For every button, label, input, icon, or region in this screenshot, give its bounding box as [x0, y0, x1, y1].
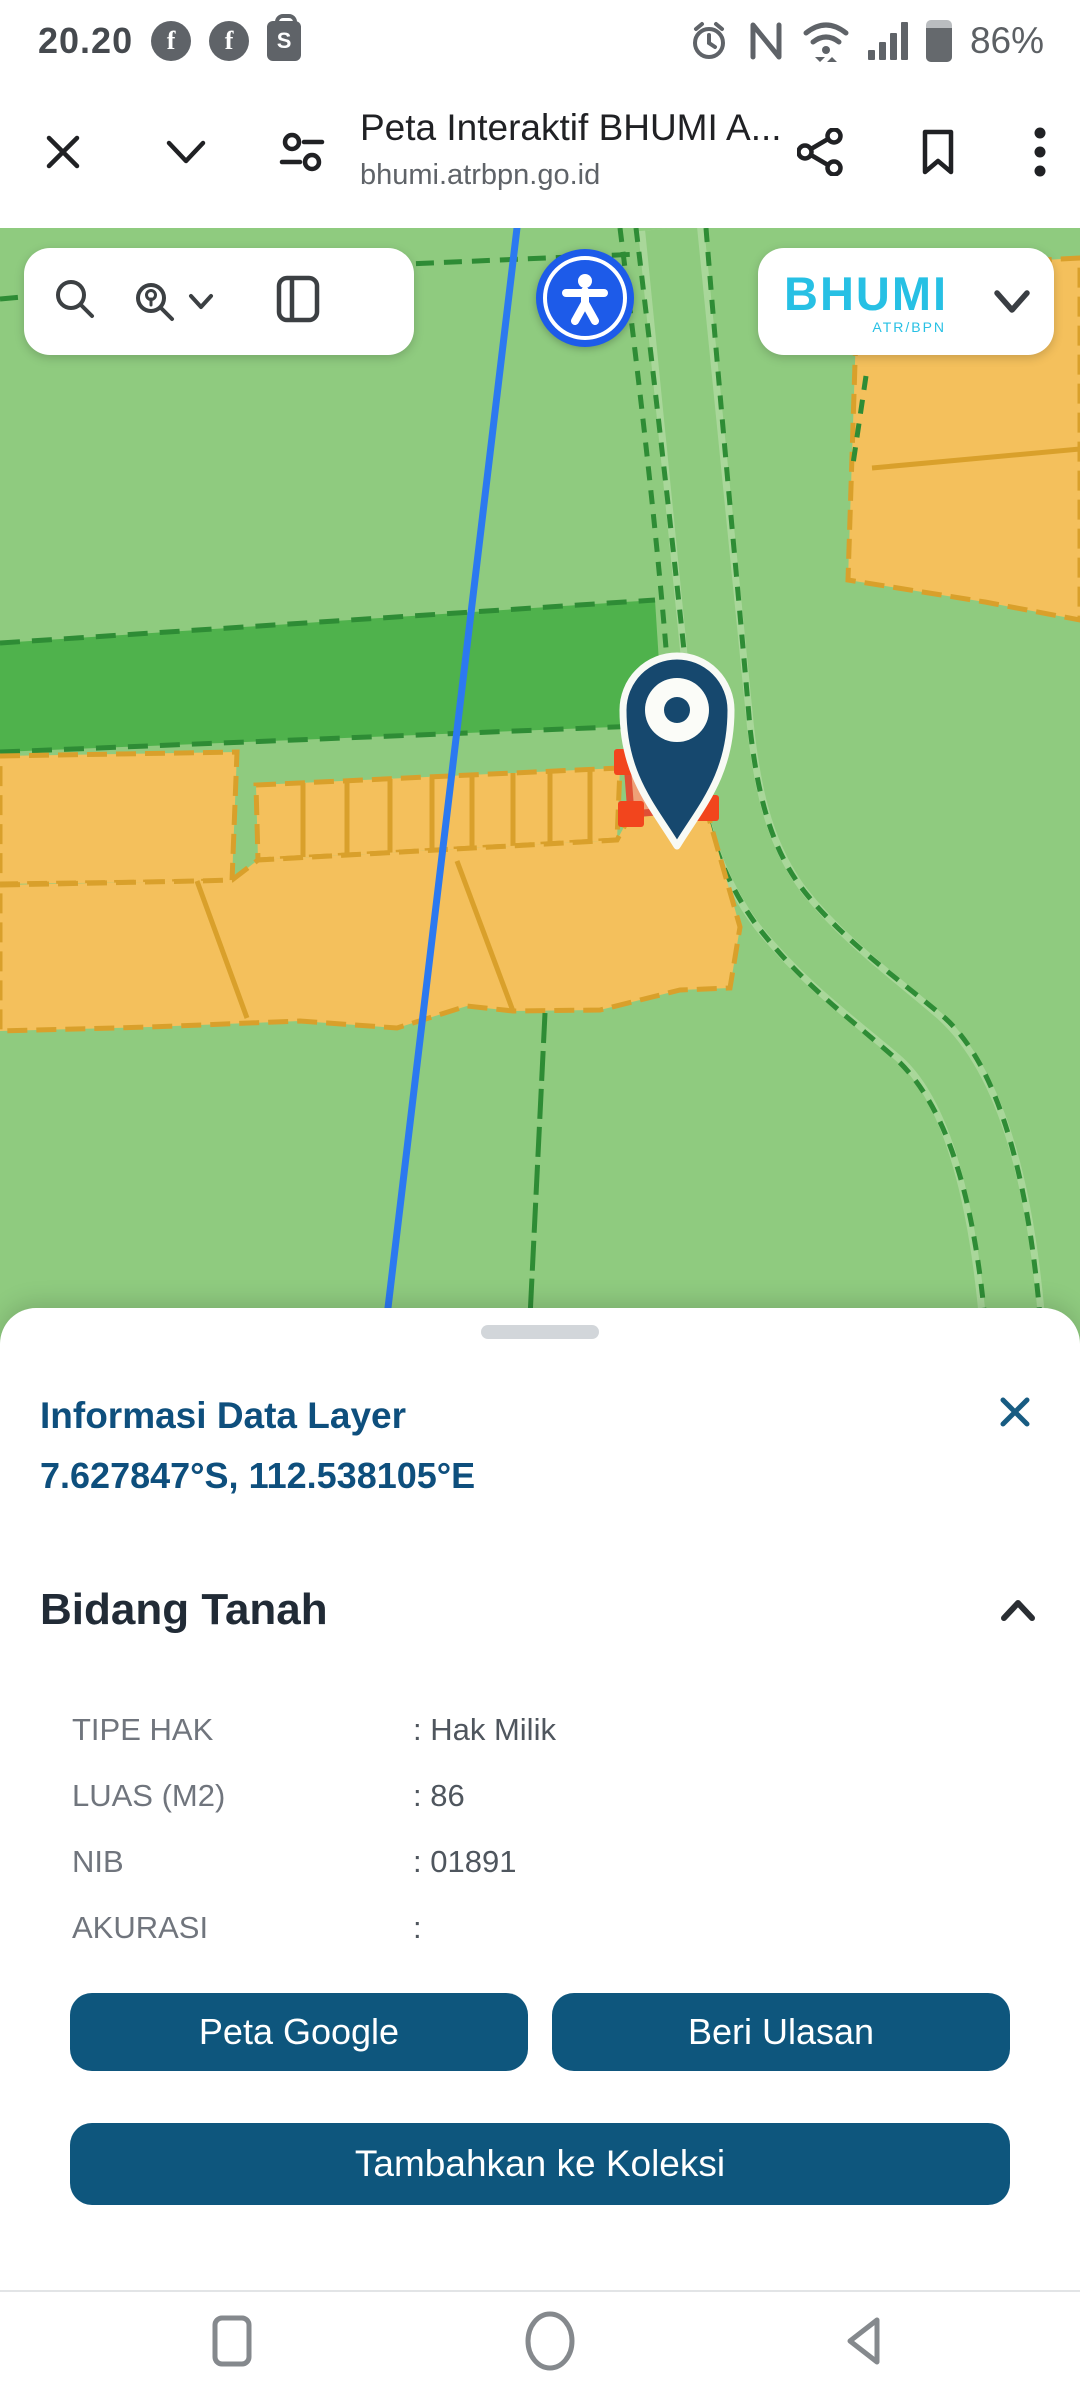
beri-ulasan-button[interactable]: Beri Ulasan: [552, 1993, 1010, 2071]
table-row: LUAS (M2) : 86: [72, 1763, 1080, 1829]
search-place-dropdown[interactable]: [132, 279, 214, 325]
drag-handle[interactable]: [481, 1325, 599, 1339]
chevron-down-icon: [992, 288, 1032, 316]
table-row: NIB : 01891: [72, 1829, 1080, 1895]
shopee-bag-icon: S: [267, 21, 301, 61]
row-label: LUAS (M2): [72, 1778, 413, 1814]
peta-google-button[interactable]: Peta Google: [70, 1993, 528, 2071]
close-icon[interactable]: [998, 1395, 1032, 1429]
accessibility-ring: [543, 256, 627, 340]
recents-icon[interactable]: [200, 2292, 264, 2388]
layer-selector[interactable]: BHUMI ATR/BPN: [758, 248, 1054, 355]
facebook-icon: f: [209, 21, 249, 61]
row-value: : 86: [413, 1778, 465, 1814]
phone-screen: 20.20 f f S 86%: [0, 0, 1080, 2388]
share-icon[interactable]: [780, 128, 860, 176]
accessibility-button[interactable]: [536, 249, 634, 347]
browser-toolbar: Peta Interaktif BHUMI A... bhumi.atrbpn.…: [0, 75, 1080, 228]
bhumi-logo-text: BHUMI: [784, 270, 948, 317]
android-nav-bar: [0, 2290, 1080, 2388]
table-row: TIPE HAK : Hak Milik: [72, 1697, 1080, 1763]
page-url: bhumi.atrbpn.go.id: [360, 159, 760, 192]
facebook-icon: f: [151, 21, 191, 61]
row-label: TIPE HAK: [72, 1712, 413, 1748]
interactive-map[interactable]: BHUMI ATR/BPN: [0, 228, 1080, 1358]
page-title: Peta Interaktif BHUMI A...: [360, 107, 760, 149]
tambahkan-ke-koleksi-button[interactable]: Tambahkan ke Koleksi: [70, 2123, 1010, 2205]
alarm-icon: [688, 20, 730, 62]
close-icon[interactable]: [0, 131, 126, 173]
chevron-down-icon[interactable]: [126, 137, 246, 167]
wifi-icon: [802, 19, 850, 63]
battery-percent: 86%: [970, 20, 1044, 62]
chevron-up-icon: [1000, 1598, 1036, 1622]
info-bottom-sheet: Informasi Data Layer 7.627847°S, 112.538…: [0, 1308, 1080, 2290]
sheet-title: Informasi Data Layer: [40, 1395, 406, 1437]
page-title-block[interactable]: Peta Interaktif BHUMI A... bhumi.atrbpn.…: [360, 107, 760, 192]
cadastral-map-canvas: [0, 228, 1080, 1358]
clock-time: 20.20: [38, 20, 133, 62]
bookmark-icon[interactable]: [898, 128, 978, 176]
parcel-attributes: TIPE HAK : Hak Milik LUAS (M2) : 86 NIB …: [0, 1697, 1080, 1961]
row-value: : 01891: [413, 1844, 516, 1880]
row-label: AKURASI: [72, 1910, 413, 1946]
battery-icon: [926, 20, 952, 62]
section-title: Bidang Tanah: [40, 1585, 328, 1635]
side-panel-icon[interactable]: [276, 275, 320, 328]
search-icon[interactable]: [52, 276, 98, 327]
map-search-toolbar: [24, 248, 414, 355]
table-row: AKURASI :: [72, 1895, 1080, 1961]
bhumi-logo: BHUMI ATR/BPN: [784, 270, 948, 334]
tune-icon[interactable]: [246, 130, 358, 174]
row-label: NIB: [72, 1844, 413, 1880]
coordinates-text: 7.627847°S, 112.538105°E: [0, 1437, 1080, 1497]
status-bar: 20.20 f f S 86%: [0, 0, 1080, 75]
bhumi-logo-subtext: ATR/BPN: [872, 320, 946, 334]
signal-icon: [868, 22, 908, 60]
chevron-down-icon: [188, 293, 214, 311]
overflow-menu-icon[interactable]: [1010, 126, 1070, 178]
search-place-icon: [132, 279, 178, 325]
nfc-icon: [748, 21, 784, 61]
section-bidang-tanah[interactable]: Bidang Tanah: [0, 1585, 1080, 1635]
row-value: :: [413, 1910, 422, 1946]
back-icon[interactable]: [832, 2292, 896, 2388]
row-value: : Hak Milik: [413, 1712, 556, 1748]
home-icon[interactable]: [518, 2292, 582, 2388]
